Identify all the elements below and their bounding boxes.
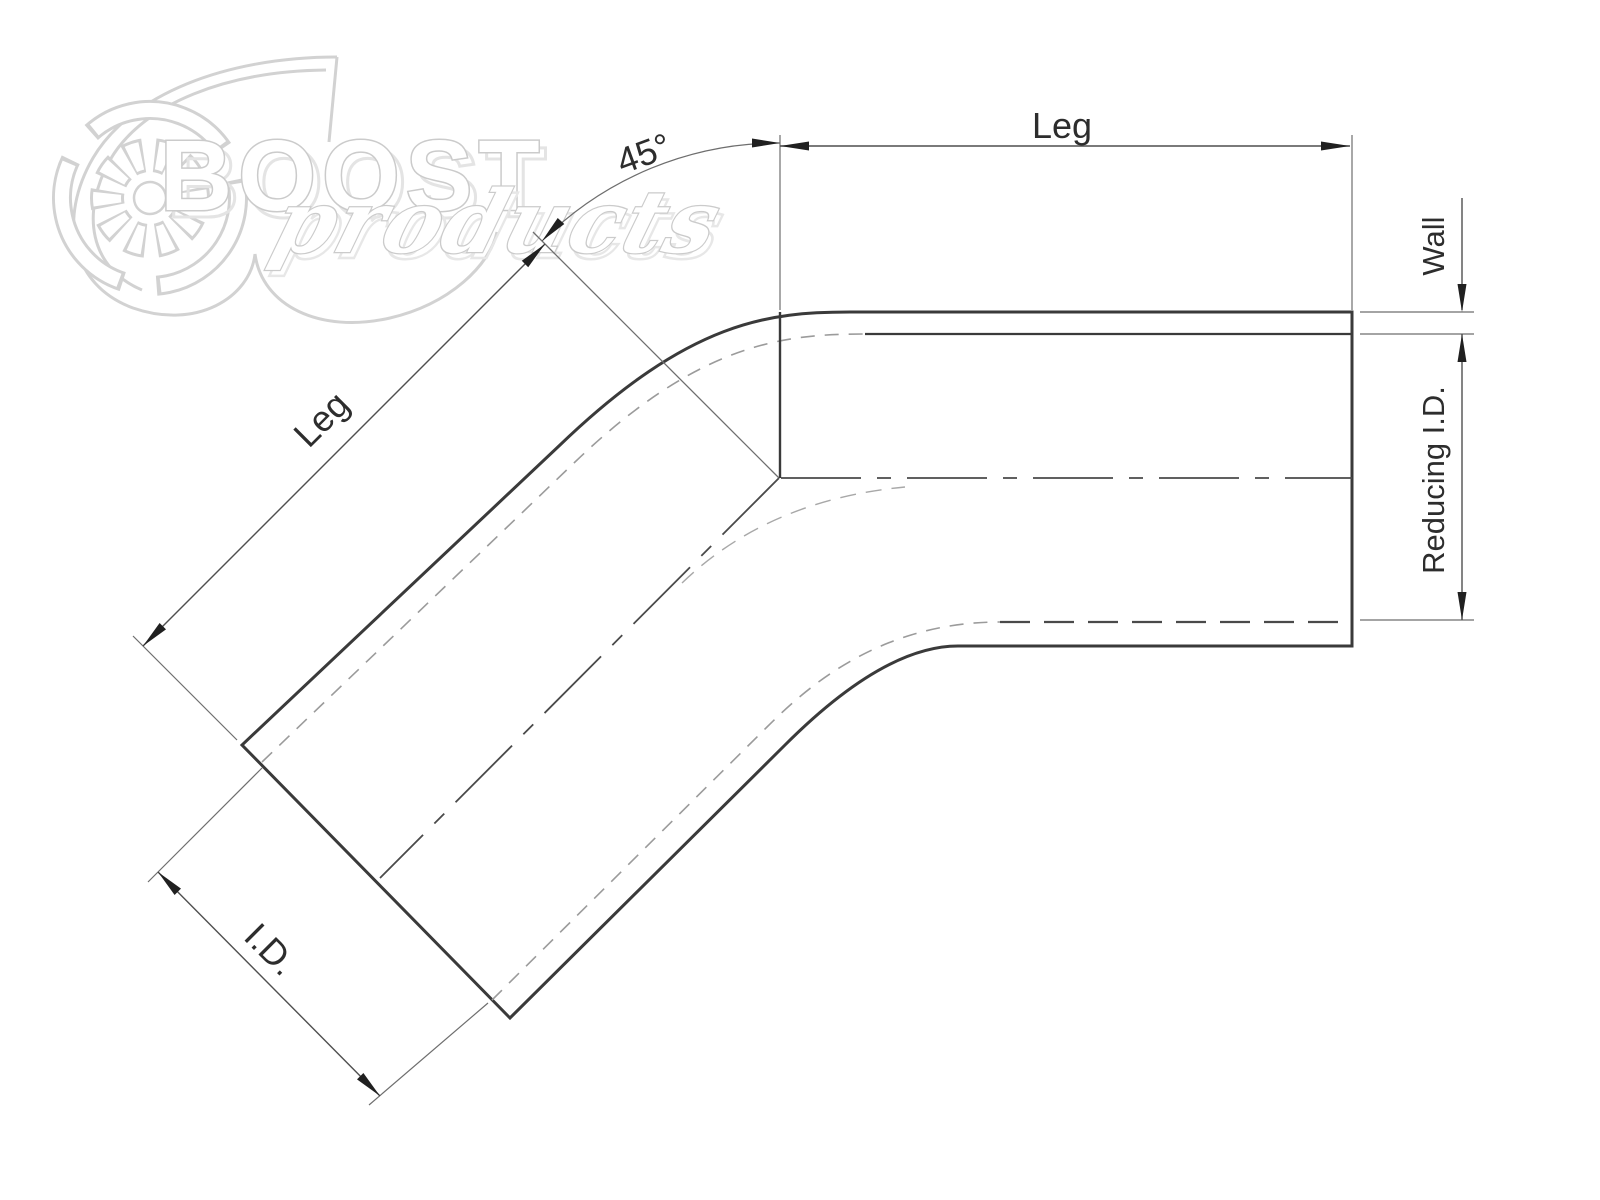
inner-wall-bottom-hidden-line: [492, 622, 1000, 1000]
wall-label: Wall: [1416, 216, 1451, 275]
dimension-leg-top: Leg: [780, 105, 1352, 310]
leg-diagonal-label: Leg: [285, 383, 356, 454]
extension-line-leg-diagonal: [133, 636, 237, 740]
dimension-line-leg-diagonal: [143, 244, 545, 646]
dimension-line-id: [158, 872, 380, 1096]
elbow-outer-outline: [242, 312, 1352, 1018]
arrowhead-icon: [752, 139, 780, 148]
elbow-hose-drawing: [242, 232, 1352, 1018]
dimension-inner-diameter: I.D.: [148, 768, 488, 1105]
extension-line-id-upper: [148, 768, 262, 882]
dimension-reducing-id: Reducing I.D.: [1360, 334, 1474, 620]
bore-transition-hidden-curve: [682, 487, 905, 583]
inner-wall-top-hidden-line: [262, 334, 865, 762]
arrowhead-icon: [143, 623, 166, 646]
arrowhead-icon: [357, 1073, 380, 1096]
dimension-wall: Wall: [1360, 198, 1474, 334]
arrowhead-icon: [1321, 142, 1350, 151]
dimension-leg-diagonal: Leg: [133, 244, 545, 740]
brand-text-products: products: [262, 172, 733, 273]
technical-drawing-canvas: BOOST BOOST products products: [0, 0, 1600, 1200]
inner-diameter-label: I.D.: [237, 915, 306, 984]
arrowhead-icon: [1458, 592, 1467, 620]
arrowhead-icon: [1458, 284, 1467, 312]
arrowhead-icon: [1458, 334, 1467, 362]
leg-top-label: Leg: [1032, 105, 1092, 146]
arrowhead-icon: [780, 142, 809, 151]
arrowhead-icon: [158, 872, 181, 895]
centerline-diagonal: [380, 478, 779, 878]
boost-watermark: BOOST BOOST products products: [46, 57, 739, 322]
extension-line-id-lower: [369, 1003, 488, 1105]
reducing-id-label: Reducing I.D.: [1416, 386, 1451, 574]
